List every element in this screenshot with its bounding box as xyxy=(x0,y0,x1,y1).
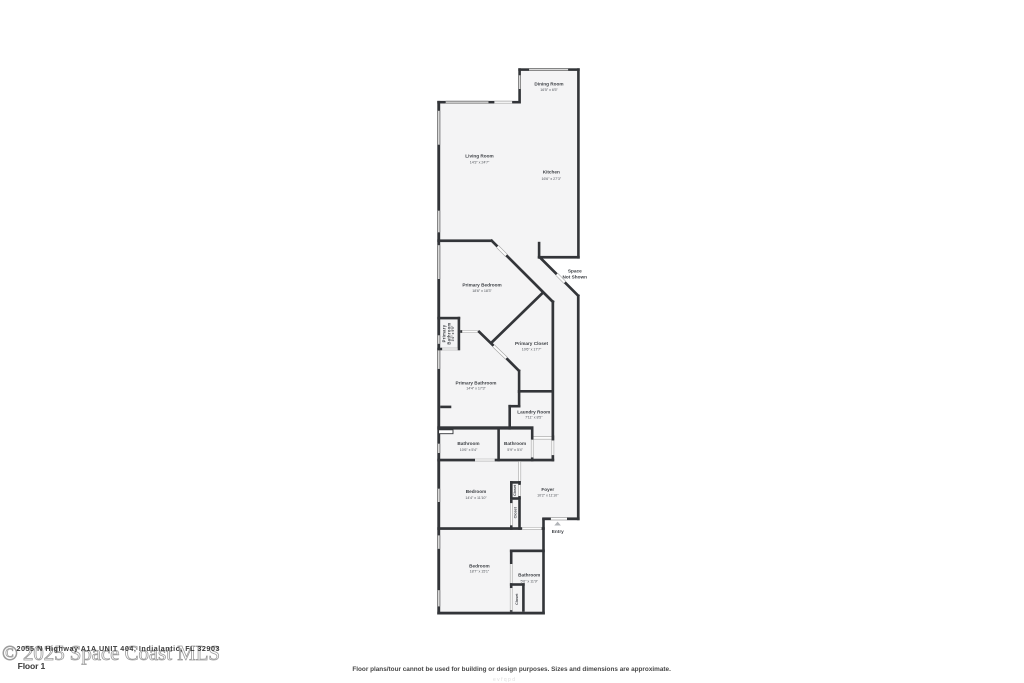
svg-text:Closet: Closet xyxy=(514,506,518,518)
svg-text:Closet: Closet xyxy=(513,484,517,496)
svg-text:Bedroom: Bedroom xyxy=(466,489,487,494)
svg-text:Kitchen: Kitchen xyxy=(543,170,560,175)
svg-text:Not Shown: Not Shown xyxy=(563,274,588,279)
svg-text:Bathroom: Bathroom xyxy=(457,441,479,446)
svg-text:Living Room: Living Room xyxy=(465,153,493,158)
svg-text:Foyer: Foyer xyxy=(541,487,554,492)
svg-text:Bedroom: Bedroom xyxy=(469,563,490,568)
svg-text:7'11" x 8'5": 7'11" x 8'5" xyxy=(525,416,543,420)
svg-text:10'2" x 11'10": 10'2" x 11'10" xyxy=(537,493,559,497)
svg-text:Bathroom: Bathroom xyxy=(504,441,526,446)
svg-text:Dining Room: Dining Room xyxy=(534,81,563,86)
svg-text:18'7" x 15'1": 18'7" x 15'1" xyxy=(470,570,490,574)
svg-text:14'4" x 11'10": 14'4" x 11'10" xyxy=(465,496,487,500)
svg-text:Space: Space xyxy=(568,269,582,274)
svg-text:Primary Bedroom: Primary Bedroom xyxy=(462,283,501,288)
svg-text:Primary Bathroom: Primary Bathroom xyxy=(456,381,497,386)
svg-text:10'6" x 5'4": 10'6" x 5'4" xyxy=(460,448,478,452)
svg-text:2055 N Highway A1A UNIT 404, I: 2055 N Highway A1A UNIT 404, Indialantic… xyxy=(17,644,221,653)
svg-text:Bathroom: Bathroom xyxy=(518,573,540,578)
svg-text:14'4" x 17'3": 14'4" x 17'3" xyxy=(466,386,486,390)
svg-text:e v f q p d: e v f q p d xyxy=(493,677,515,683)
svg-text:14'3" x 24'7": 14'3" x 24'7" xyxy=(470,161,490,165)
svg-text:16'5" x 6'5": 16'5" x 6'5" xyxy=(540,88,558,92)
svg-text:16'6" x 27'3": 16'6" x 27'3" xyxy=(542,177,562,181)
svg-text:Entry: Entry xyxy=(552,529,564,534)
svg-text:5'9" x 5'4": 5'9" x 5'4" xyxy=(507,448,523,452)
svg-text:Floor 1: Floor 1 xyxy=(18,661,46,671)
svg-text:Closet: Closet xyxy=(515,593,519,605)
svg-text:Primary Closet: Primary Closet xyxy=(515,341,549,346)
svg-text:10'6" x 17'7": 10'6" x 17'7" xyxy=(522,347,542,351)
svg-text:18'6" x 18'3": 18'6" x 18'3" xyxy=(472,289,492,293)
svg-text:3'4" x 5'5": 3'4" x 5'5" xyxy=(451,325,455,341)
svg-text:5'6" x 11'9": 5'6" x 11'9" xyxy=(521,579,539,583)
svg-text:Laundry Room: Laundry Room xyxy=(517,410,550,415)
svg-text:Floor plans/tour cannot be use: Floor plans/tour cannot be used for buil… xyxy=(352,666,671,673)
